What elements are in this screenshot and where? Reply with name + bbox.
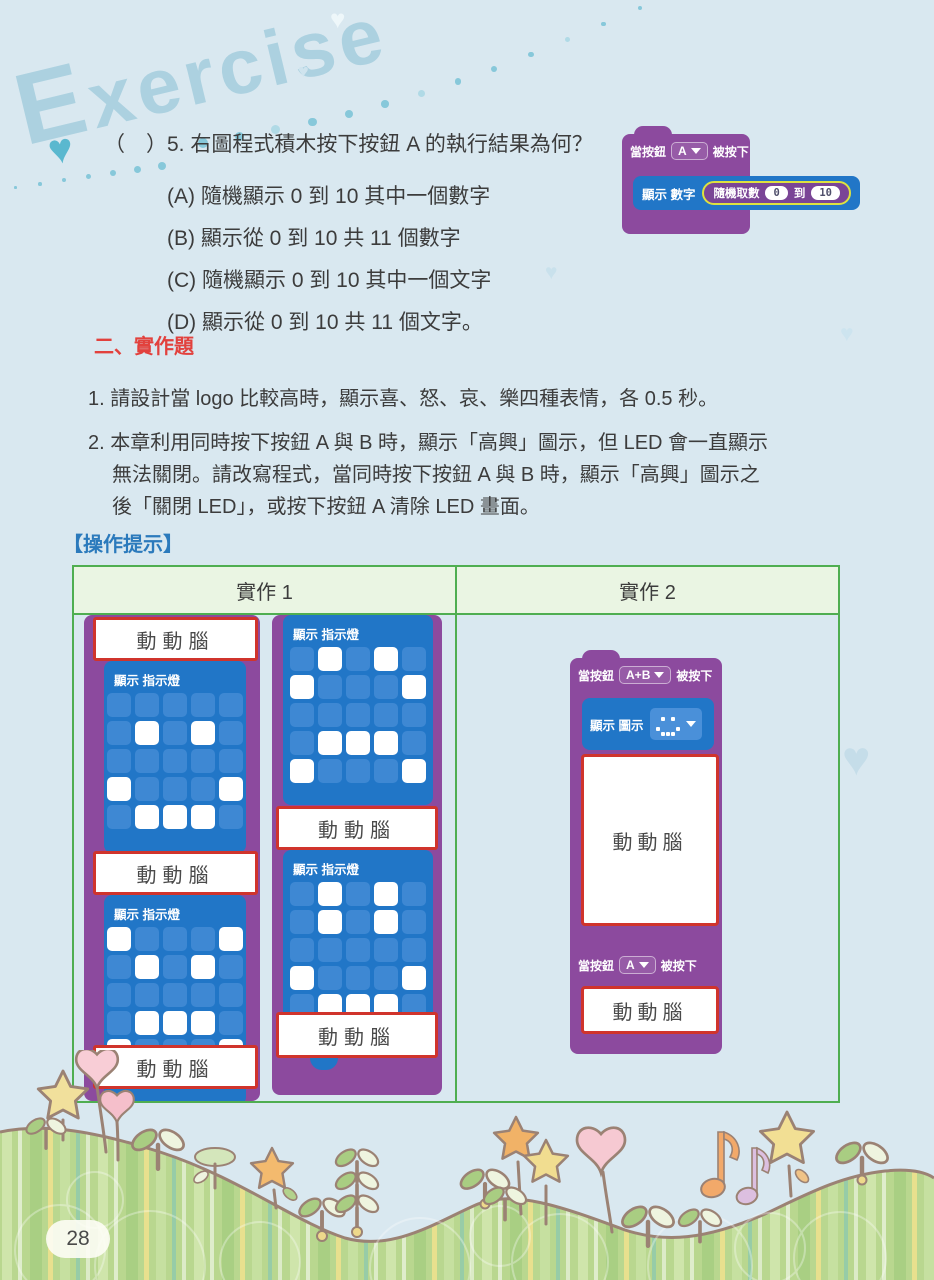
led-off bbox=[107, 721, 131, 745]
section-heading: 二、實作題 bbox=[94, 330, 194, 359]
table-header-practice2: 實作 2 bbox=[455, 567, 838, 613]
item-2-line2: 無法關閉。請改寫程式，當同時按下按鈕 A 與 B 時，顯示「高興」圖示之 bbox=[112, 458, 760, 487]
trail-dot bbox=[455, 78, 462, 85]
led-off bbox=[191, 927, 215, 951]
option-c: (C) 隨機顯示 0 到 10 其中一個文字 bbox=[167, 260, 491, 302]
led-off bbox=[290, 703, 314, 727]
led-on bbox=[135, 1011, 159, 1035]
led-on bbox=[107, 777, 131, 801]
star-icon bbox=[524, 1140, 568, 1182]
led-off bbox=[346, 938, 370, 962]
led-off bbox=[107, 955, 131, 979]
heart-icon: ♥ bbox=[330, 6, 345, 32]
led-on bbox=[402, 759, 426, 783]
led-on bbox=[374, 910, 398, 934]
block-label: 到 bbox=[794, 185, 806, 201]
star-icon bbox=[760, 1112, 813, 1163]
led-off bbox=[374, 938, 398, 962]
led-on bbox=[191, 1011, 215, 1035]
option-a: (A) 隨機顯示 0 到 10 其中一個數字 bbox=[167, 176, 491, 218]
led-grid bbox=[290, 647, 426, 783]
led-on bbox=[290, 675, 314, 699]
heart-icon: ♥ bbox=[298, 62, 309, 80]
led-grid bbox=[107, 927, 243, 1063]
led-grid bbox=[107, 693, 243, 829]
from-value: 0 bbox=[765, 186, 787, 200]
led-off bbox=[135, 927, 159, 951]
led-off bbox=[135, 693, 159, 717]
block-label: 顯示 指示燈 bbox=[104, 661, 246, 689]
led-off bbox=[219, 805, 243, 829]
block-label: 被按下 bbox=[713, 143, 749, 160]
led-off bbox=[346, 882, 370, 906]
led-on bbox=[135, 955, 159, 979]
question-number: 5. bbox=[167, 133, 185, 156]
led-on bbox=[219, 777, 243, 801]
led-off bbox=[346, 759, 370, 783]
table-body-row: 動動腦 顯示 指示燈 動動腦 顯示 指示燈 動動腦 顯示 指示燈 動動腦 bbox=[74, 615, 838, 1101]
music-note-icon bbox=[752, 1148, 757, 1194]
led-on bbox=[290, 759, 314, 783]
led-off bbox=[402, 731, 426, 755]
trail-dot bbox=[528, 52, 534, 58]
led-on bbox=[318, 647, 342, 671]
led-on bbox=[163, 805, 187, 829]
option-d: (D) 顯示從 0 到 10 共 11 個文字。 bbox=[167, 302, 491, 344]
cell-practice2: 當按鈕 A+B 被按下 顯示 圖示 動動腦 當按鈕 A bbox=[455, 615, 838, 1101]
led-on bbox=[402, 675, 426, 699]
led-off bbox=[290, 910, 314, 934]
brainstorm-box: 動動腦 bbox=[93, 851, 258, 895]
block-label: 當按鈕 bbox=[578, 667, 614, 684]
block-label: 被按下 bbox=[676, 667, 712, 684]
led-off bbox=[318, 675, 342, 699]
led-off bbox=[290, 938, 314, 962]
trail-dot bbox=[565, 37, 570, 42]
led-off bbox=[346, 910, 370, 934]
led-off bbox=[374, 675, 398, 699]
star-icon bbox=[251, 1148, 293, 1188]
table-header-practice1: 實作 1 bbox=[74, 567, 455, 613]
led-off bbox=[346, 675, 370, 699]
led-off bbox=[219, 693, 243, 717]
chevron-down-icon bbox=[691, 148, 701, 154]
star-icon bbox=[38, 1071, 87, 1118]
trail-dot bbox=[14, 186, 17, 189]
led-on bbox=[191, 721, 215, 745]
hint-label: 【操作提示】 bbox=[63, 528, 183, 557]
option-b: (B) 顯示從 0 到 10 共 11 個數字 bbox=[167, 218, 491, 260]
led-off bbox=[107, 693, 131, 717]
led-off bbox=[290, 882, 314, 906]
block-label: 隨機取數 bbox=[713, 185, 759, 201]
led-on bbox=[191, 955, 215, 979]
led-off bbox=[346, 647, 370, 671]
led-off bbox=[163, 721, 187, 745]
brainstorm-box: 動動腦 bbox=[93, 617, 258, 661]
heart-icon bbox=[76, 1050, 118, 1088]
led-off bbox=[318, 703, 342, 727]
footer-decoration bbox=[0, 1050, 934, 1280]
heart-icon bbox=[577, 1128, 625, 1173]
block-label: 顯示 指示燈 bbox=[283, 615, 433, 643]
led-off bbox=[219, 721, 243, 745]
item-1: 1. 請設計當 logo 比較高時，顯示喜、怒、哀、樂四種表情，各 0.5 秒。 bbox=[88, 382, 718, 411]
page-number: 28 bbox=[46, 1220, 110, 1258]
led-off bbox=[163, 749, 187, 773]
led-off bbox=[191, 777, 215, 801]
led-off bbox=[191, 749, 215, 773]
brainstorm-box: 動動腦 bbox=[276, 806, 438, 850]
trail-dot bbox=[638, 6, 642, 10]
led-off bbox=[290, 731, 314, 755]
led-on bbox=[374, 647, 398, 671]
trail-dot bbox=[158, 162, 166, 170]
hint-table: 實作 1 實作 2 動動腦 顯示 指示燈 動動腦 顯示 指示燈 動動腦 bbox=[72, 565, 840, 1103]
led-off bbox=[163, 927, 187, 951]
led-off bbox=[402, 910, 426, 934]
block-label: 顯示 指示燈 bbox=[283, 850, 433, 878]
happy-face-icon bbox=[656, 712, 680, 736]
led-off bbox=[374, 703, 398, 727]
led-on bbox=[318, 882, 342, 906]
button-dropdown: A+B bbox=[619, 666, 671, 684]
led-off bbox=[107, 749, 131, 773]
led-off bbox=[107, 1011, 131, 1035]
led-off bbox=[219, 955, 243, 979]
question-code-block: 當按鈕 A 被按下 顯示 數字 隨機取數 0 到 10 bbox=[622, 134, 882, 240]
block-label: 顯示 指示燈 bbox=[104, 895, 246, 923]
led-off bbox=[219, 983, 243, 1007]
led-on bbox=[135, 805, 159, 829]
led-off bbox=[374, 759, 398, 783]
led-off bbox=[135, 749, 159, 773]
brainstorm-box: 動動腦 bbox=[581, 754, 719, 926]
question-5-options: (A) 隨機顯示 0 到 10 其中一個數字 (B) 顯示從 0 到 10 共 … bbox=[167, 176, 491, 344]
led-off bbox=[135, 983, 159, 1007]
answer-space: （ ） bbox=[104, 133, 167, 156]
item-2-line1: 2. 本章利用同時按下按鈕 A 與 B 時，顯示「高興」圖示，但 LED 會一直… bbox=[88, 426, 768, 455]
led-off bbox=[219, 1011, 243, 1035]
led-off bbox=[163, 955, 187, 979]
hat-row: 當按鈕 A 被按下 bbox=[570, 948, 705, 978]
led-off bbox=[346, 966, 370, 990]
led-off bbox=[163, 693, 187, 717]
led-off bbox=[346, 703, 370, 727]
table-header-row: 實作 1 實作 2 bbox=[74, 567, 838, 615]
heart-icon: ♥ bbox=[840, 322, 854, 345]
led-on bbox=[163, 1011, 187, 1035]
question-text: 右圖程式積木按下按鈕 A 的執行結果為何？ bbox=[190, 133, 593, 156]
item-2-line3: 後「關閉 LED」，或按下按鈕 A 清除 LED 畫面。 bbox=[112, 490, 540, 519]
led-on bbox=[107, 927, 131, 951]
random-number-block: 隨機取數 0 到 10 bbox=[702, 181, 850, 205]
trail-dot bbox=[62, 178, 66, 182]
block-label: 當按鈕 bbox=[630, 143, 666, 160]
to-value: 10 bbox=[811, 186, 840, 200]
brainstorm-box: 動動腦 bbox=[581, 986, 719, 1034]
led-on bbox=[402, 966, 426, 990]
heart-icon bbox=[100, 1091, 134, 1123]
icon-dropdown bbox=[650, 708, 702, 740]
led-off bbox=[318, 966, 342, 990]
hat-row: 當按鈕 A+B 被按下 bbox=[570, 658, 722, 688]
star-icon bbox=[494, 1117, 538, 1159]
led-on bbox=[374, 731, 398, 755]
chevron-down-icon bbox=[686, 721, 696, 727]
chevron-down-icon bbox=[639, 962, 649, 968]
led-off bbox=[107, 805, 131, 829]
heart-icon: ♥ bbox=[842, 736, 871, 784]
trail-dot bbox=[308, 118, 317, 127]
led-off bbox=[191, 693, 215, 717]
button-dropdown: A bbox=[619, 956, 656, 974]
chevron-down-icon bbox=[654, 672, 664, 678]
led-on bbox=[290, 966, 314, 990]
led-off bbox=[374, 966, 398, 990]
led-off bbox=[290, 647, 314, 671]
led-off bbox=[318, 938, 342, 962]
led-off bbox=[402, 938, 426, 962]
led-off bbox=[402, 882, 426, 906]
show-icon-block: 顯示 圖示 bbox=[582, 698, 714, 750]
trail-dot bbox=[38, 182, 42, 186]
question-5-stem: （ ）5. 右圖程式積木按下按鈕 A 的執行結果為何？ bbox=[104, 128, 593, 158]
block-label: 顯示 數字 bbox=[642, 184, 695, 203]
block-label: 當按鈕 bbox=[578, 957, 614, 974]
trail-dot bbox=[134, 166, 141, 173]
led-on bbox=[219, 927, 243, 951]
led-on bbox=[191, 805, 215, 829]
block-label: 顯示 圖示 bbox=[590, 715, 643, 734]
led-on bbox=[374, 882, 398, 906]
button-dropdown: A bbox=[671, 142, 708, 160]
led-on bbox=[318, 731, 342, 755]
show-leds-block: 顯示 指示燈 bbox=[283, 615, 433, 805]
show-leds-block: 顯示 指示燈 bbox=[104, 661, 246, 853]
trail-dot bbox=[491, 66, 497, 72]
show-number-block: 顯示 數字 隨機取數 0 到 10 bbox=[633, 176, 860, 210]
led-off bbox=[402, 703, 426, 727]
led-off bbox=[135, 777, 159, 801]
led-on bbox=[346, 731, 370, 755]
trail-dot bbox=[381, 100, 389, 108]
cell-practice1: 動動腦 顯示 指示燈 動動腦 顯示 指示燈 動動腦 顯示 指示燈 動動腦 bbox=[74, 615, 455, 1101]
music-note-icon bbox=[718, 1132, 724, 1186]
heart-icon: ♥ bbox=[545, 262, 557, 283]
block-label: 被按下 bbox=[661, 957, 697, 974]
led-on bbox=[318, 910, 342, 934]
on-button-ab-pressed-block: 當按鈕 A+B 被按下 顯示 圖示 動動腦 當按鈕 A bbox=[570, 658, 722, 1054]
trail-dot bbox=[86, 174, 91, 179]
led-off bbox=[163, 983, 187, 1007]
trail-dot bbox=[418, 90, 425, 97]
trail-dot bbox=[601, 22, 606, 27]
trail-dot bbox=[345, 110, 353, 118]
textbook-page: Exercise ♥ ♥ ♥ ♥ ♥ ♥ （ ）5. 右圖程式積木按下按鈕 A … bbox=[0, 0, 934, 1280]
led-grid bbox=[290, 882, 426, 1018]
led-off bbox=[191, 983, 215, 1007]
led-off bbox=[402, 647, 426, 671]
led-off bbox=[107, 983, 131, 1007]
trail-dot bbox=[110, 170, 116, 176]
led-off bbox=[163, 777, 187, 801]
led-off bbox=[219, 749, 243, 773]
led-off bbox=[318, 759, 342, 783]
led-on bbox=[135, 721, 159, 745]
